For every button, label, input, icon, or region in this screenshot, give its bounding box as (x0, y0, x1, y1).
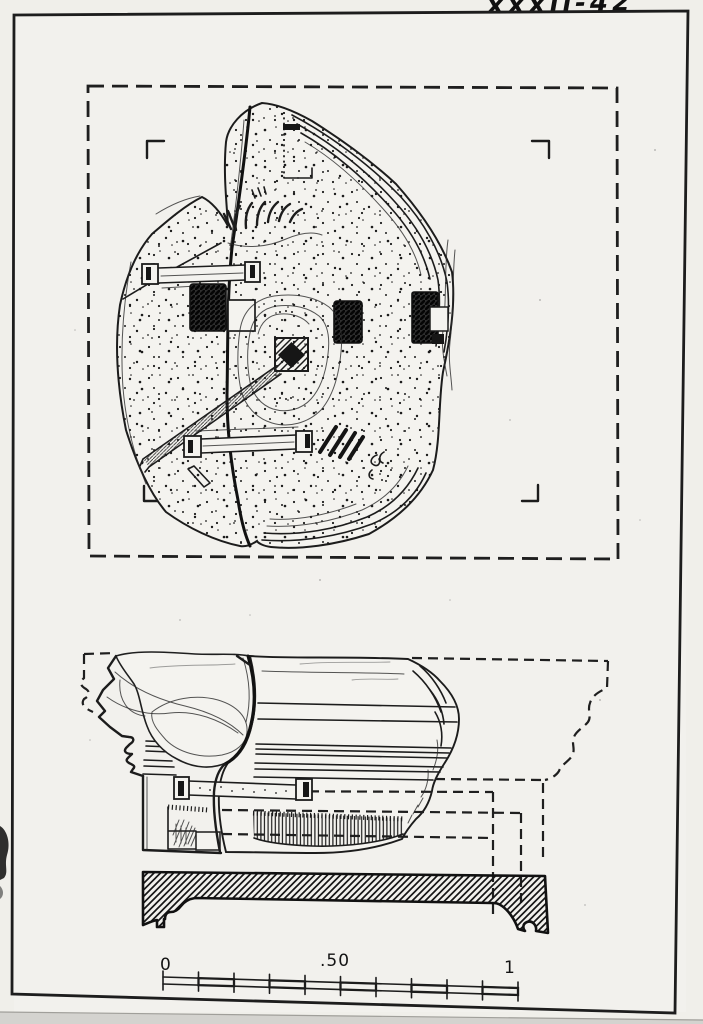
plate-scan: XXXII-42 (0, 0, 703, 1024)
dowel-hole-left (190, 284, 226, 331)
scanned-plate-page: XXXII-42 (0, 0, 703, 1024)
dowel-hole-center (334, 301, 362, 343)
black-mark (283, 124, 300, 130)
scale-label-fifty: .50 (320, 951, 350, 971)
scale-label-zero: 0 (160, 955, 172, 975)
anathyrosis-band (253, 812, 404, 846)
dowel-ledge-left (228, 300, 255, 331)
scale-label-one: 1 (504, 958, 516, 978)
